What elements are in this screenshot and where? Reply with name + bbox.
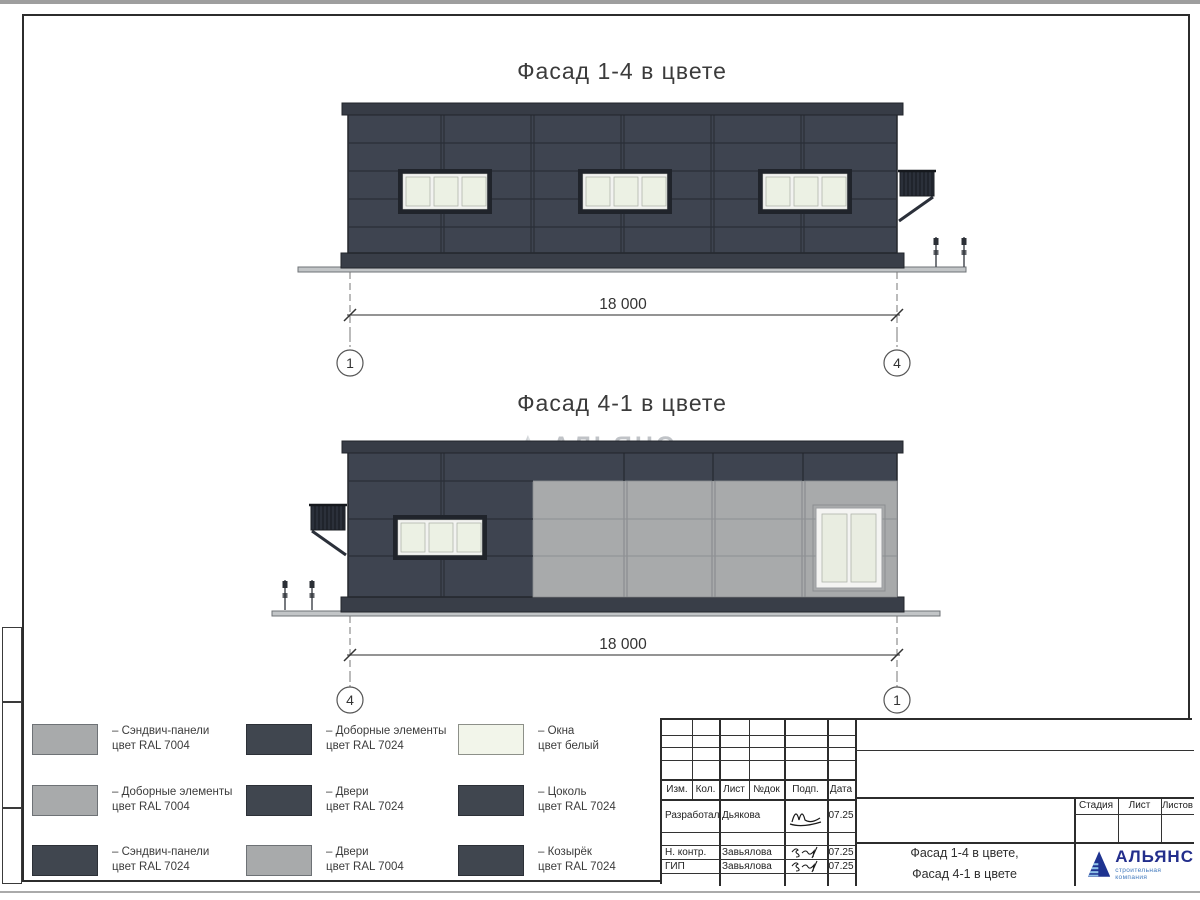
flag-posts bbox=[283, 580, 315, 610]
legend-item: – Сэндвич-панелицвет RAL 7024 bbox=[32, 845, 247, 885]
title-block: Изм. Кол. Лист №док Подп. Дата Разработа… bbox=[660, 718, 1192, 884]
tb-signature-nkontr bbox=[784, 845, 827, 859]
drawing-sheet: Фасад 1-4 в цвете Фасад 4-1 в цвете АЛЬЯ… bbox=[0, 0, 1200, 900]
legend-swatch-ral7024 bbox=[458, 845, 524, 876]
tb-role-nkontr: Н. контр. bbox=[662, 845, 719, 859]
axis-number: 4 bbox=[346, 692, 354, 708]
tb-signature-razrabotal bbox=[784, 799, 827, 832]
logo-subtitle: строительная компания bbox=[1115, 867, 1194, 881]
legend-item: – Доборные элементыцвет RAL 7024 bbox=[246, 724, 461, 764]
canopy bbox=[898, 171, 936, 221]
legend-item: – Дверицвет RAL 7004 bbox=[246, 845, 461, 885]
roof-cap bbox=[342, 103, 903, 115]
legend-item: – Цокольцвет RAL 7024 bbox=[458, 785, 673, 825]
legend-item: – Доборные элементыцвет RAL 7004 bbox=[32, 785, 247, 825]
tb-stage-header: Стадия bbox=[1074, 797, 1118, 814]
flag-posts bbox=[934, 237, 967, 267]
tb-date: 07.25 bbox=[827, 799, 855, 832]
legend-swatch-ral7004 bbox=[32, 724, 98, 755]
window bbox=[758, 169, 852, 214]
signature-icon bbox=[789, 860, 823, 873]
tb-header-izm: Изм. bbox=[662, 779, 692, 799]
legend-item: – Сэндвич-панелицвет RAL 7004 bbox=[32, 724, 247, 764]
facade-4-1-drawing bbox=[272, 441, 940, 616]
legend-swatch-white bbox=[458, 724, 524, 755]
company-logo: АЛЬЯНС строительная компания bbox=[1074, 842, 1194, 886]
tb-header-ndok: №док bbox=[749, 779, 784, 799]
tb-signature-gip bbox=[784, 859, 827, 873]
dimension-facade-4-1: 18 000 4 1 bbox=[337, 616, 910, 713]
tb-date: 07.25 bbox=[827, 859, 855, 873]
tb-sheets-header: Листов bbox=[1161, 797, 1194, 814]
window-white-frame bbox=[813, 505, 885, 591]
tb-role-razrabotal: Разработал bbox=[662, 799, 719, 832]
legend-swatch-ral7004 bbox=[32, 785, 98, 816]
legend-swatch-ral7024 bbox=[458, 785, 524, 816]
legend-swatch-ral7024 bbox=[246, 724, 312, 755]
tb-date: 07.25 bbox=[827, 845, 855, 859]
tb-role-gip: ГИП bbox=[662, 859, 719, 873]
window bbox=[578, 169, 672, 214]
dimension-facade-1-4: 18 000 1 4 bbox=[337, 272, 910, 376]
facade-1-4-drawing bbox=[298, 103, 967, 272]
dimension-value: 18 000 bbox=[599, 636, 647, 653]
window bbox=[393, 515, 487, 560]
legend-item: – Козырёкцвет RAL 7024 bbox=[458, 845, 673, 885]
tb-name-dyakova: Дьякова bbox=[719, 799, 784, 832]
legend-swatch-ral7024 bbox=[246, 785, 312, 816]
legend-item: – Дверицвет RAL 7024 bbox=[246, 785, 461, 825]
roof-cap bbox=[342, 441, 903, 453]
axis-number: 1 bbox=[893, 692, 901, 708]
plinth bbox=[341, 597, 904, 612]
tb-sheet-header: Лист bbox=[1118, 797, 1161, 814]
tb-header-data: Дата bbox=[827, 779, 855, 799]
tb-header-kol: Кол. bbox=[692, 779, 719, 799]
tb-name-zavyalova: Завьялова bbox=[719, 845, 784, 859]
axis-number: 4 bbox=[893, 355, 901, 371]
alliance-pyramid-icon bbox=[1088, 848, 1110, 880]
tb-header-podp: Подп. bbox=[784, 779, 827, 799]
legend-swatch-ral7004 bbox=[246, 845, 312, 876]
logo-title: АЛЬЯНС bbox=[1115, 848, 1194, 865]
plinth bbox=[341, 253, 904, 268]
dimension-value: 18 000 bbox=[599, 296, 647, 313]
tb-header-list: Лист bbox=[719, 779, 749, 799]
signature-icon bbox=[788, 805, 824, 827]
legend-swatch-ral7024 bbox=[32, 845, 98, 876]
canopy bbox=[309, 505, 347, 555]
signature-icon bbox=[789, 846, 823, 859]
tb-doc-title: Фасад 1-4 в цвете, Фасад 4-1 в цвете bbox=[855, 842, 1074, 886]
legend-item: – Окнацвет белый bbox=[458, 724, 673, 764]
tb-name-zavyalova: Завьялова bbox=[719, 859, 784, 873]
axis-number: 1 bbox=[346, 355, 354, 371]
window bbox=[398, 169, 492, 214]
